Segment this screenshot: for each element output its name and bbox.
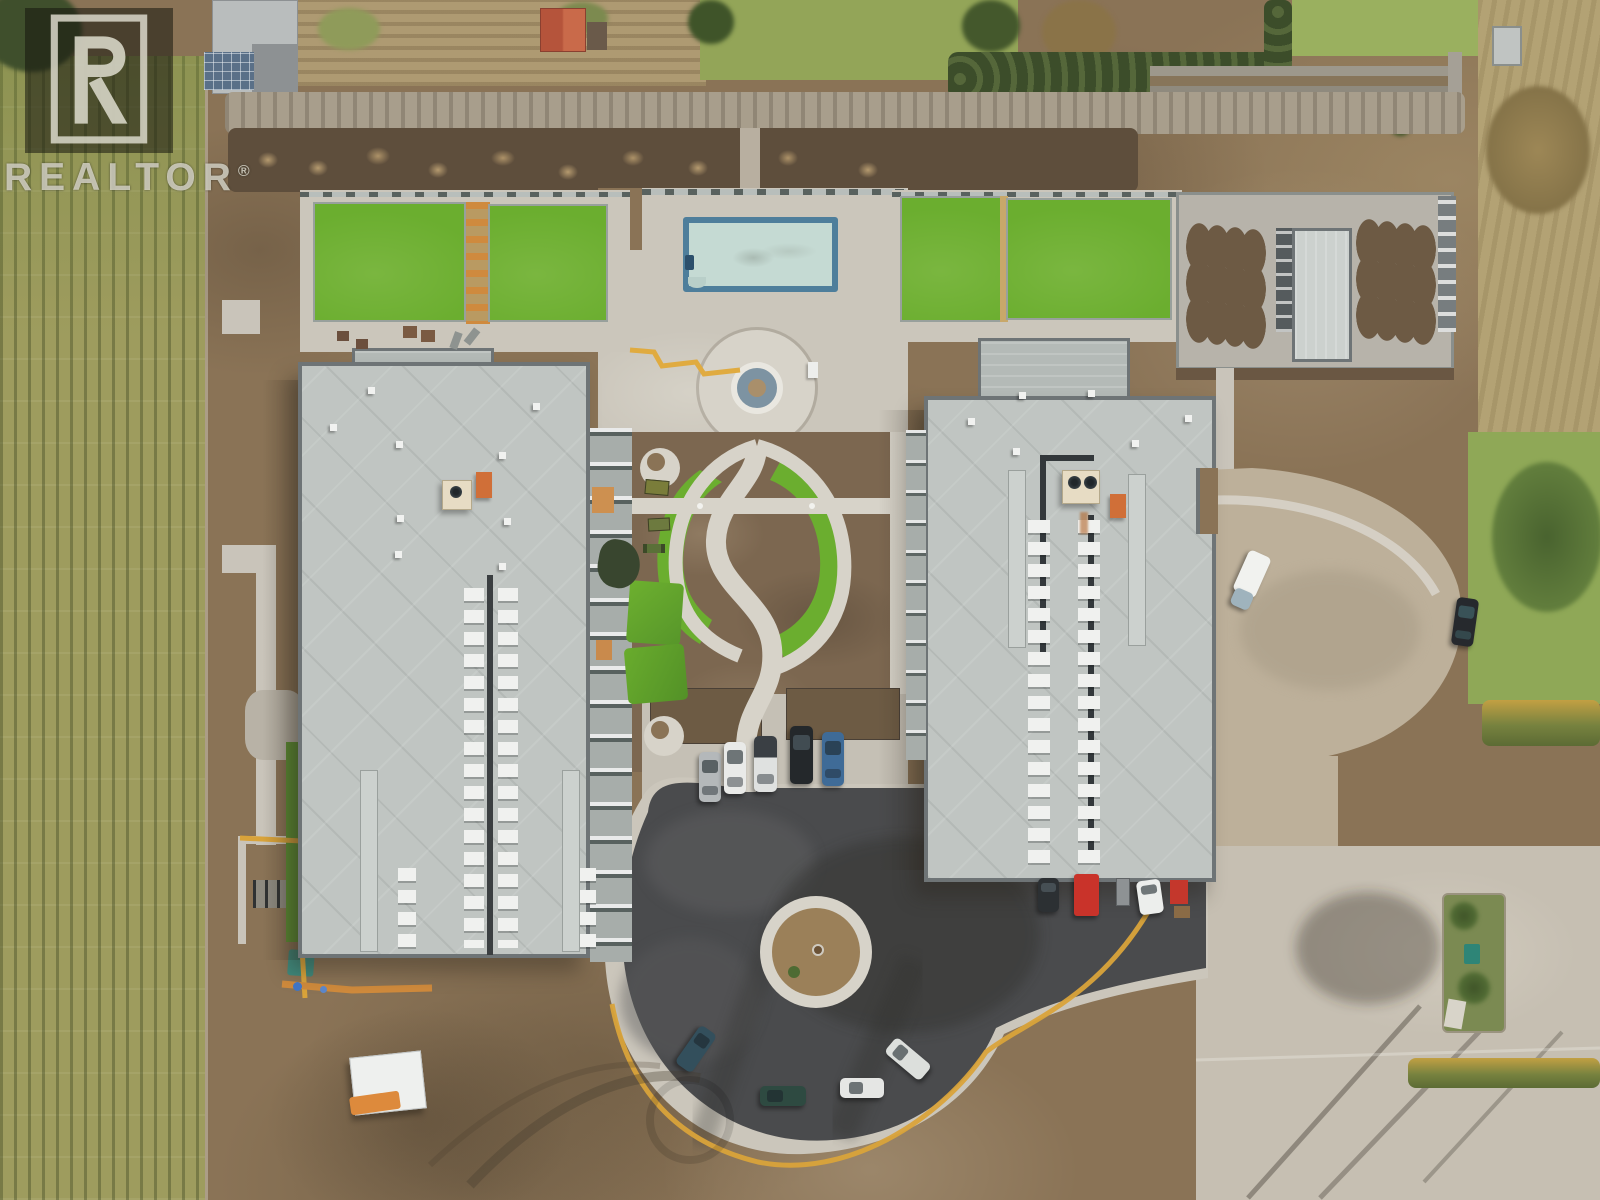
roof-vent: [1088, 390, 1095, 397]
roof-vent: [533, 403, 540, 410]
deck-edge-lumber: [630, 350, 740, 374]
hedge-bottom-right: [1408, 1058, 1600, 1088]
hvac-unit-column: [1028, 520, 1050, 870]
roof-vent: [396, 441, 403, 448]
loading-car-white: [1136, 878, 1164, 915]
roof-vent: [1019, 392, 1026, 399]
car-windshield: [692, 1032, 710, 1050]
path-light: [809, 503, 815, 509]
aerial-photo: REALTOR®: [0, 0, 1600, 1200]
car-rear-glass: [727, 777, 742, 786]
car-windshield: [849, 1082, 863, 1094]
roof-walkway: [1008, 470, 1026, 648]
lumber-stack: [282, 984, 432, 990]
gray-equipment: [1116, 878, 1130, 906]
facade-orange-panel: [596, 640, 612, 660]
car-windshield: [702, 760, 717, 773]
roof-pipe: [1040, 455, 1094, 461]
island-shrub: [788, 966, 800, 978]
roof-vent: [397, 515, 404, 522]
path-light: [697, 503, 703, 509]
car-rear-glass: [1455, 629, 1471, 640]
left-building-roof: [298, 362, 590, 958]
roof-vent: [968, 418, 975, 425]
car-rear-glass: [825, 769, 840, 779]
right-building-north-wing-roof: [978, 338, 1130, 402]
left-building-shadow: [262, 380, 300, 960]
hvac-unit-column: [498, 588, 518, 948]
loading-suv-dark: [1038, 878, 1059, 912]
watermark-registered-mark: ®: [238, 163, 250, 180]
car-windshield: [767, 1090, 783, 1102]
roof-walkway: [360, 770, 378, 952]
roof-walkway: [1128, 474, 1146, 646]
blue-barrel: [293, 982, 302, 991]
red-truck: [1074, 874, 1099, 916]
garden-bench: [643, 544, 665, 553]
roof-fan: [1084, 476, 1097, 489]
roof-vent: [504, 518, 511, 525]
roof-vent: [1013, 448, 1020, 455]
parked-car-silver: [699, 752, 721, 802]
parked-suv-black: [790, 726, 813, 784]
watermark-brand-text: REALTOR®: [4, 156, 224, 200]
skid-steer: [648, 517, 671, 531]
roof-walkway: [562, 770, 580, 952]
hvac-unit-column: [398, 868, 416, 954]
roof-vent: [395, 551, 402, 558]
patio-chair: [337, 331, 349, 341]
realtor-r-logo-icon: [39, 14, 159, 146]
roof-vent: [499, 563, 506, 570]
seating-nook-soil: [647, 453, 665, 471]
watermark-logo-box: [25, 8, 173, 153]
car-windshield: [793, 735, 809, 750]
roof-fan: [450, 486, 462, 498]
car-windshield: [1041, 883, 1056, 892]
teal-dumpster: [1464, 944, 1480, 964]
tree-shadow: [1296, 892, 1440, 1004]
roof-vent: [330, 424, 337, 431]
car-rear-glass: [757, 774, 773, 784]
roof-orange-unit: [1110, 494, 1126, 518]
blue-barrel: [320, 986, 327, 993]
hvac-unit-column: [1078, 520, 1100, 870]
red-container: [1170, 880, 1188, 904]
roof-vent: [368, 387, 375, 394]
facade-orange-panel: [592, 487, 614, 513]
pole-shadow: [1320, 1010, 1500, 1198]
turf-roll-pile: [626, 580, 684, 646]
patio-planter: [403, 326, 417, 338]
turf-roll-pile: [624, 643, 689, 704]
car-windshield: [1140, 884, 1158, 895]
car-windshield: [727, 750, 742, 764]
roof-pipe: [487, 575, 493, 955]
car-windshield: [1458, 605, 1475, 619]
patio-chair: [356, 339, 368, 349]
parked-car-white-sunroof: [754, 736, 777, 792]
parked-suv-blue: [822, 732, 844, 786]
parked-car-white: [724, 742, 746, 794]
car-white: [840, 1078, 884, 1098]
seating-nook-soil: [651, 721, 669, 739]
logo-letter-r: [75, 36, 128, 123]
pole-shadow: [1248, 1006, 1420, 1198]
patio-planter: [421, 330, 435, 342]
hvac-unit-column: [578, 868, 596, 954]
car-rear-glass: [702, 786, 717, 795]
skid-steer: [644, 479, 669, 496]
organic-shapes-layer: [0, 0, 1600, 1200]
median-tree: [1450, 902, 1478, 930]
right-roof-notch: [1196, 468, 1218, 534]
pallet: [1174, 906, 1190, 918]
hvac-unit-column: [464, 588, 484, 948]
car-windshield: [892, 1044, 910, 1062]
roof-fan: [1068, 476, 1081, 489]
pole-shadow: [1424, 1032, 1562, 1182]
car-dark-green: [760, 1086, 806, 1106]
roof-vent: [499, 452, 506, 459]
loop-road-wear: [1240, 570, 1420, 690]
roof-orange-unit: [476, 472, 492, 498]
right-building-roof: [924, 396, 1216, 882]
rust-streak: [1080, 512, 1088, 534]
island-drain: [813, 945, 823, 955]
roof-vent: [1185, 415, 1192, 422]
median-tree: [1458, 972, 1490, 1004]
balcony-strip-west: [906, 430, 926, 760]
roof-vent: [1132, 440, 1139, 447]
watermark-brand: REALTOR: [4, 156, 238, 199]
car-windshield: [825, 741, 840, 755]
turf-crescent-right: [770, 462, 848, 664]
